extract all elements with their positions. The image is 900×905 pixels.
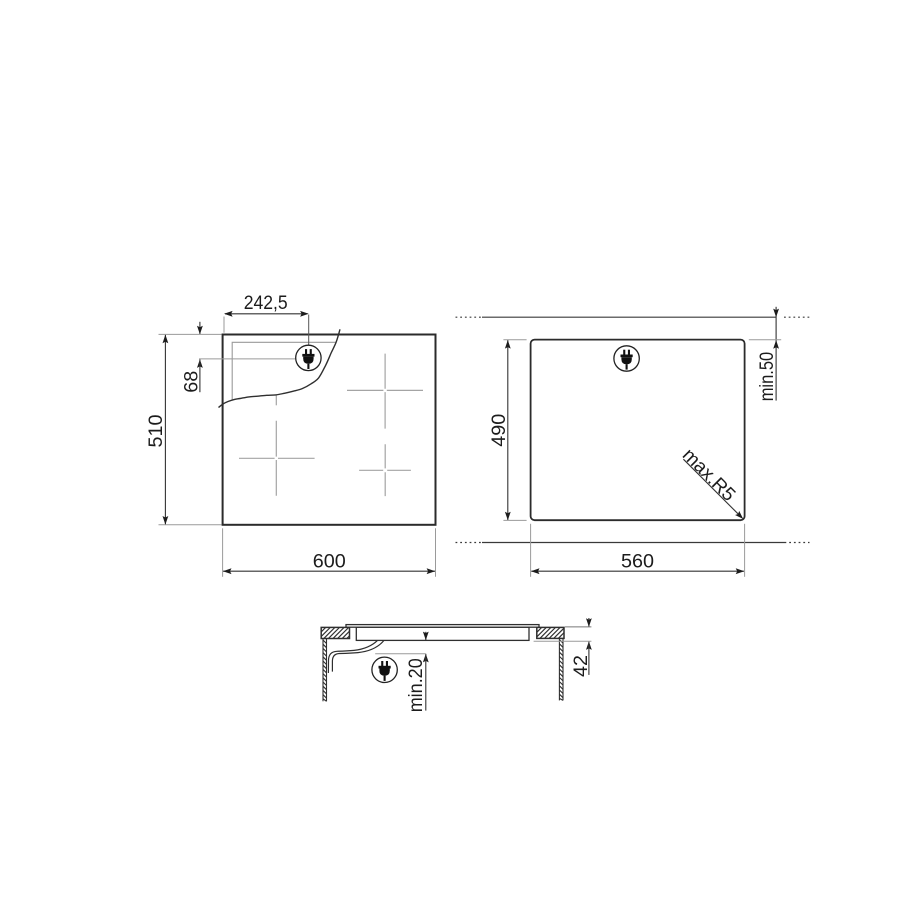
svg-text:490: 490 [488,414,510,447]
svg-text:242,5: 242,5 [244,292,288,314]
svg-text:42: 42 [570,655,592,677]
svg-text:600: 600 [313,551,346,573]
svg-text:510: 510 [145,414,167,447]
svg-text:min.20: min.20 [406,658,427,712]
svg-text:68: 68 [180,371,202,393]
svg-text:min.50: min.50 [757,352,778,402]
svg-text:560: 560 [621,551,654,573]
